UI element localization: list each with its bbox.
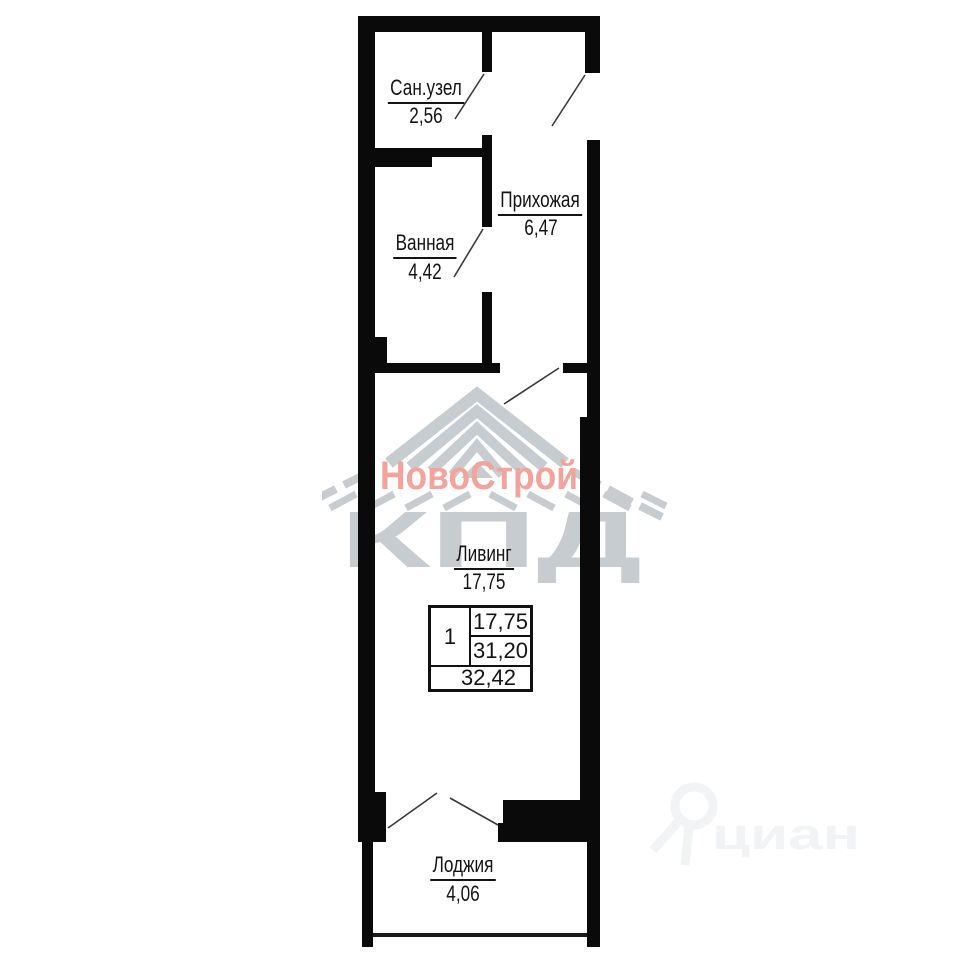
room-area-vannaya: 4,42 [408,261,441,283]
summary-table: 1 17,75 31,20 32,42 [428,605,533,692]
wall-right-upper [587,140,600,417]
summary-rooms-count: 1 [431,608,471,665]
wall-vannaya-bottom [383,363,500,373]
wall-top [358,16,600,32]
wall-right-main [580,417,600,842]
summary-area-no-balcony: 31,20 [471,637,530,665]
wall-balcony-left-block [358,827,386,842]
cian-watermark-text: циан [712,810,860,859]
wall-sanuzel-bottom-thin [432,148,483,157]
wall-hall-bottom-right [563,363,587,373]
wall-balcony-right-block [503,800,583,823]
vannaya-door-line [454,229,483,277]
wall-right-entry-stub [585,32,600,73]
room-label-prihozhaya: Прихожая [498,189,582,216]
room-area-living: 17,75 [463,571,506,593]
room-area-loggia: 4,06 [446,883,479,905]
wall-partition-mid [482,135,492,227]
room-label-living: Ливинг [454,543,514,570]
cian-watermark: циан [640,765,890,875]
room-area-sanuzel: 2,56 [409,105,442,127]
summary-total-area: 32,42 [431,665,530,689]
wall-sanuzel-bottom-thick [358,148,432,167]
wall-left-loggia [362,842,373,947]
developer-name-watermark: НовоСтрой [380,454,578,498]
wall-right-loggia [587,842,600,947]
balcony-door-left-line [388,793,437,828]
map-pin-icon [653,787,713,865]
balcony-door-right-line [450,798,498,825]
wall-balcony-right-block2 [498,823,587,842]
loggia-window-line [373,933,587,937]
entry-door-line [552,75,585,126]
floorplan-canvas: НовоСтрой КПД циан [0,0,960,960]
room-label-vannaya: Ванная [393,232,456,259]
room-area-prihozhaya: 6,47 [524,217,557,239]
wall-partition-low [482,292,492,368]
wall-partition-stub [482,32,492,72]
room-label-loggia: Лоджия [430,854,495,881]
room-label-sanuzel: Сан.узел [388,77,464,104]
wall-left [358,16,375,842]
summary-living-area: 17,75 [471,608,530,637]
